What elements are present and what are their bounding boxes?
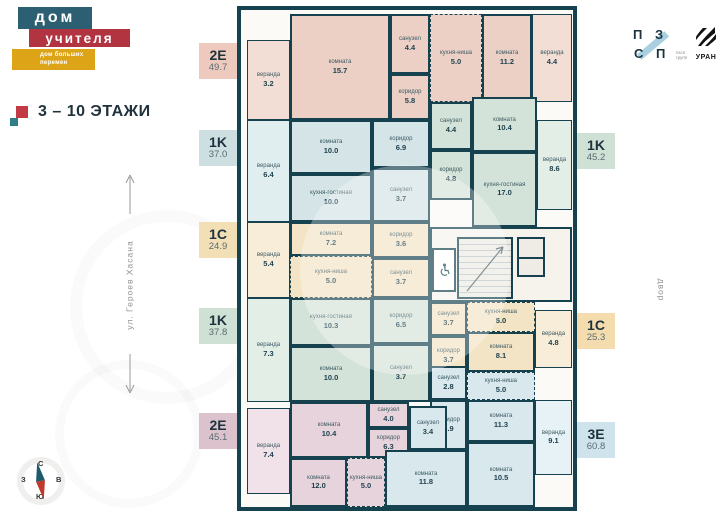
- room-name-label: веранда: [257, 252, 280, 259]
- room-name-label: веранда: [257, 72, 280, 79]
- room-name-label: комната: [329, 59, 352, 66]
- room-area-label: 4.0: [383, 414, 393, 423]
- room-area-label: 3.7: [396, 277, 406, 286]
- street-label-text: ул. Героев Хасана: [125, 240, 135, 329]
- room-name-label: комната: [320, 231, 343, 238]
- uran-logo: УРАН: [694, 26, 718, 61]
- apartment-type-label: 1C: [209, 227, 227, 242]
- room-area-label: 6.5: [396, 320, 406, 329]
- room-санузел: санузел3.7: [372, 258, 430, 298]
- wheelchair-icon: [438, 263, 450, 277]
- room-area-label: 5.0: [496, 385, 506, 394]
- room-area-label: 3.4: [423, 427, 433, 436]
- stairs-direction-icon: [459, 239, 511, 297]
- room-кухня-гостиная: кухня-гостиная17.0: [472, 152, 537, 227]
- room-name-label: санузел: [399, 36, 421, 43]
- room-коридор: коридор3.6: [372, 222, 430, 258]
- apartment-area-label: 24.9: [209, 242, 228, 252]
- room-name-label: коридор: [390, 313, 413, 320]
- apartment-area-label: 45.1: [209, 433, 228, 443]
- room-санузел: санузел2.8: [430, 366, 467, 400]
- room-area-label: 17.0: [497, 188, 512, 197]
- room-кухня-гостиная: кухня-гостиная10.3: [290, 298, 372, 346]
- room-area-label: 8.6: [549, 164, 559, 173]
- room-коридор: коридор6.5: [372, 298, 430, 344]
- room-санузел: санузел3.7: [430, 302, 467, 336]
- room-name-label: комната: [496, 50, 519, 57]
- room-кухня-ниша: кухня-ниша5.0: [347, 458, 385, 507]
- room-санузел: санузел4.4: [430, 102, 472, 150]
- room-area-label: 10.0: [324, 197, 339, 206]
- room-name-label: комната: [490, 413, 513, 420]
- apartment-badge-1C-24.9: 1C24.9: [199, 222, 237, 258]
- room-area-label: 5.0: [451, 57, 461, 66]
- room-area-label: 11.8: [419, 477, 433, 486]
- room-area-label: 3.7: [443, 318, 453, 327]
- room-коридор: коридор4.8: [430, 150, 472, 200]
- apartment-badge-1K-37.8: 1K37.8: [199, 308, 237, 344]
- room-area-label: 10.0: [324, 146, 339, 155]
- room-санузел: санузел4.0: [368, 402, 409, 428]
- room-area-label: 4.8: [446, 174, 456, 183]
- floors-heading: 3 – 10 ЭТАЖИ: [38, 103, 151, 121]
- brand-line-2: учителя: [45, 31, 113, 46]
- room-name-label: веранда: [540, 50, 563, 57]
- room-area-label: 11.3: [494, 420, 508, 429]
- room-санузел: санузел3.4: [409, 406, 447, 450]
- brand-tagline-line2: перемен: [40, 60, 67, 68]
- room-name-label: коридор: [390, 136, 413, 143]
- room-name-label: кухня-гостиная: [310, 190, 352, 197]
- room-name-label: комната: [490, 467, 513, 474]
- apartment-type-label: 1K: [587, 138, 605, 153]
- room-комната: комната11.2: [482, 14, 532, 102]
- brand-tagline: дом больших перемен: [12, 49, 95, 70]
- room-комната: комната11.3: [467, 400, 535, 442]
- street-arrow-down-icon: [124, 354, 136, 394]
- apartment-badge-2E-45.1: 2E45.1: [199, 413, 237, 449]
- yard-label: двор: [648, 250, 674, 330]
- room-area-label: 5.0: [496, 316, 506, 325]
- room-комната: комната10.5: [467, 442, 535, 507]
- room-area-label: 3.6: [396, 239, 406, 248]
- room-name-label: комната: [415, 471, 438, 478]
- compass-east-label: В: [56, 475, 61, 484]
- room-area-label: 4.8: [548, 338, 558, 347]
- room-area-label: 10.5: [494, 473, 509, 482]
- room-name-label: кухня-ниша: [485, 378, 517, 385]
- room-санузел: санузел3.7: [372, 344, 430, 402]
- pzsp-group-line2: групп: [676, 55, 687, 60]
- room-name-label: веранда: [542, 331, 565, 338]
- pzsp-letter: З: [655, 27, 663, 42]
- room-name-label: комната: [307, 475, 330, 482]
- uran-icon: [695, 26, 717, 48]
- room-name-label: кухня-гостиная: [310, 314, 352, 321]
- screenshot-stage: дом учителя дом больших перемен 3 – 10 Э…: [0, 0, 720, 521]
- room-area-label: 10.4: [322, 429, 337, 438]
- brand-box-dom: дом: [18, 7, 92, 29]
- apartment-type-label: 2E: [209, 418, 226, 433]
- room-name-label: комната: [318, 422, 341, 429]
- room-name-label: веранда: [543, 157, 566, 164]
- room-area-label: 7.2: [326, 238, 336, 247]
- room-name-label: санузел: [438, 375, 460, 382]
- room-name-label: комната: [490, 344, 513, 351]
- pzsp-group-label: пзсп групп: [676, 50, 687, 61]
- accessible-wc-room: [432, 248, 456, 292]
- room-name-label: кухня-ниша: [350, 475, 382, 482]
- room-name-label: веранда: [257, 163, 280, 170]
- room-веранда: веранда5.4: [247, 222, 290, 298]
- room-комната: комната12.0: [290, 458, 347, 507]
- room-area-label: 5.0: [361, 481, 371, 490]
- brand-tagline-line1: дом больших: [40, 52, 84, 60]
- room-name-label: санузел: [390, 187, 412, 194]
- room-name-label: коридор: [440, 167, 463, 174]
- apartment-badge-2E-49.7: 2E49.7: [199, 43, 237, 79]
- pzsp-logo: П З С П: [632, 27, 674, 65]
- room-веранда: веранда3.2: [247, 40, 290, 120]
- apartment-area-label: 45.2: [587, 153, 606, 163]
- room-комната: комната15.7: [290, 14, 390, 120]
- apartment-area-label: 37.8: [209, 328, 228, 338]
- elevator-shaft: [517, 237, 545, 277]
- room-веранда: веранда4.8: [535, 310, 572, 368]
- apartment-area-label: 37.0: [209, 150, 228, 160]
- room-area-label: 12.0: [311, 481, 326, 490]
- room-санузел: санузел4.4: [390, 14, 430, 74]
- room-area-label: 15.7: [333, 66, 348, 75]
- pzsp-letter: С: [634, 46, 643, 61]
- room-кухня-гостиная: кухня-гостиная10.0: [290, 174, 372, 222]
- room-веранда: веранда6.4: [247, 120, 290, 222]
- room-веранда: веранда4.4: [532, 14, 572, 102]
- compass-west-label: З: [21, 475, 26, 484]
- room-веранда: веранда7.4: [247, 408, 290, 494]
- apartment-area-label: 60.8: [587, 442, 606, 452]
- room-кухня-ниша: кухня-ниша5.0: [290, 256, 372, 298]
- room-name-label: комната: [320, 366, 343, 373]
- room-area-label: 5.8: [405, 96, 415, 105]
- apartment-badge-1C-25.3: 1C25.3: [577, 313, 615, 349]
- room-кухня-ниша: кухня-ниша5.0: [430, 14, 482, 102]
- room-name-label: веранда: [257, 342, 280, 349]
- apartment-type-label: 1K: [209, 135, 227, 150]
- apartment-badge-1K-37.0: 1K37.0: [199, 130, 237, 166]
- heading-teal-square: [10, 118, 18, 126]
- apartment-area-label: 25.3: [587, 333, 606, 343]
- apartment-type-label: 3E: [587, 427, 604, 442]
- room-area-label: 7.4: [263, 450, 273, 459]
- room-комната: комната10.0: [290, 346, 372, 402]
- room-кухня-ниша: кухня-ниша5.0: [467, 302, 535, 332]
- apartment-type-label: 2E: [209, 48, 226, 63]
- room-веранда: веранда9.1: [535, 400, 572, 475]
- room-area-label: 6.4: [263, 170, 273, 179]
- room-area-label: 5.4: [263, 259, 273, 268]
- room-name-label: комната: [493, 117, 516, 124]
- room-name-label: санузел: [440, 118, 462, 125]
- uran-label: УРАН: [694, 54, 718, 61]
- room-name-label: коридор: [437, 348, 460, 355]
- apartment-area-label: 49.7: [209, 63, 228, 73]
- room-area-label: 9.1: [548, 436, 558, 445]
- room-area-label: 11.2: [500, 57, 514, 66]
- room-name-label: коридор: [399, 89, 422, 96]
- room-area-label: 6.9: [396, 143, 406, 152]
- apartment-type-label: 1C: [587, 318, 605, 333]
- pzsp-letter: П: [633, 27, 642, 42]
- room-area-label: 3.7: [396, 194, 406, 203]
- room-area-label: 4.4: [405, 43, 415, 52]
- apartment-badge-1K-45.2: 1K45.2: [577, 133, 615, 169]
- pzsp-letter: П: [656, 46, 665, 61]
- room-веранда: веранда7.3: [247, 298, 290, 402]
- room-area-label: 4.4: [547, 57, 557, 66]
- apartment-type-label: 1K: [209, 313, 227, 328]
- room-name-label: кухня-ниша: [440, 50, 472, 57]
- heading-red-square: [16, 106, 28, 118]
- room-кухня-ниша: кухня-ниша5.0: [467, 372, 535, 400]
- yard-label-text: двор: [656, 279, 666, 302]
- room-name-label: санузел: [390, 365, 412, 372]
- apartment-badge-3E-60.8: 3E60.8: [577, 422, 615, 458]
- room-name-label: веранда: [257, 443, 280, 450]
- room-name-label: кухня-ниша: [485, 309, 517, 316]
- room-name-label: санузел: [390, 270, 412, 277]
- room-name-label: санузел: [438, 311, 460, 318]
- room-веранда: веранда8.6: [537, 120, 572, 210]
- room-name-label: санузел: [378, 407, 400, 414]
- room-комната: комната8.1: [467, 332, 535, 372]
- room-area-label: 4.4: [446, 125, 456, 134]
- room-комната: комната10.0: [290, 120, 372, 174]
- brand-box-uchitelya: учителя: [29, 29, 130, 47]
- room-area-label: 10.4: [497, 123, 512, 132]
- room-name-label: кухня-гостиная: [484, 182, 526, 189]
- room-комната: комната11.8: [385, 450, 467, 507]
- room-area-label: 3.7: [443, 355, 453, 364]
- room-area-label: 5.0: [326, 276, 336, 285]
- room-коридор: коридор5.8: [390, 74, 430, 120]
- room-санузел: санузел3.7: [372, 168, 430, 222]
- room-area-label: 3.7: [396, 372, 406, 381]
- room-area-label: 3.2: [263, 79, 273, 88]
- floor-plan: веранда3.2комната15.7санузел4.4коридор5.…: [237, 6, 577, 511]
- room-area-label: 10.3: [324, 321, 339, 330]
- brand-line-1: дом: [35, 9, 76, 27]
- room-area-label: 10.0: [324, 373, 339, 382]
- room-name-label: санузел: [417, 420, 439, 427]
- room-name-label: комната: [320, 139, 343, 146]
- room-area-label: 2.8: [443, 382, 453, 391]
- room-комната: комната7.2: [290, 222, 372, 256]
- room-name-label: коридор: [377, 435, 400, 442]
- room-комната: комната10.4: [290, 402, 368, 458]
- room-name-label: коридор: [390, 232, 413, 239]
- stairwell: [457, 237, 513, 299]
- room-коридор: коридор6.9: [372, 120, 430, 168]
- room-area-label: 8.1: [496, 351, 506, 360]
- room-area-label: 7.3: [263, 349, 273, 358]
- room-комната: комната10.4: [472, 97, 537, 152]
- room-name-label: кухня-ниша: [315, 269, 347, 276]
- room-name-label: веранда: [542, 430, 565, 437]
